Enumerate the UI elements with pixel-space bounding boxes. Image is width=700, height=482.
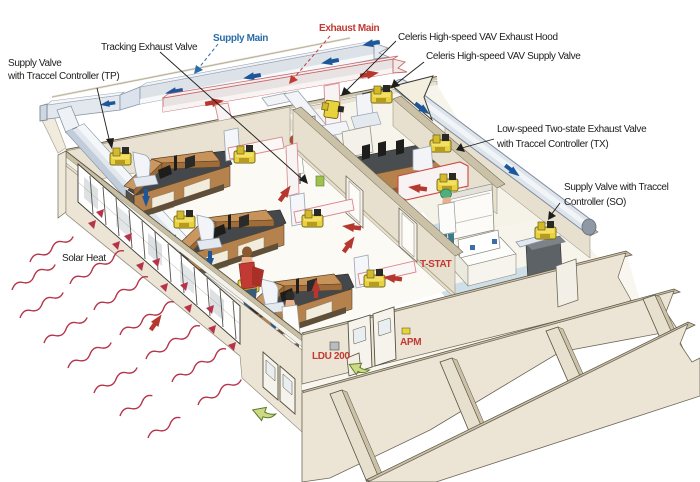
- svg-text:Controller (SO): Controller (SO): [564, 197, 626, 208]
- svg-text:with Traccel Controller (TP): with Traccel Controller (TP): [7, 71, 119, 82]
- svg-text:Tracking Exhaust Valve: Tracking Exhaust Valve: [101, 42, 198, 53]
- svg-text:Celeris High-speed VAV Supply: Celeris High-speed VAV Supply Valve: [426, 51, 581, 62]
- svg-text:Supply Main: Supply Main: [213, 33, 268, 44]
- svg-text:LDU 200: LDU 200: [312, 351, 350, 362]
- svg-text:Supply Valve: Supply Valve: [8, 58, 62, 69]
- svg-text:Exhaust Main: Exhaust Main: [319, 23, 379, 34]
- svg-text:APM: APM: [400, 337, 421, 348]
- svg-text:with Traccel Controller (TX): with Traccel Controller (TX): [496, 139, 608, 150]
- svg-text:Low-speed Two-state Exhaust Va: Low-speed Two-state Exhaust Valve: [497, 124, 647, 135]
- svg-text:Celeris High-speed VAV Exhaust: Celeris High-speed VAV Exhaust Hood: [398, 32, 558, 43]
- svg-text:Solar Heat: Solar Heat: [62, 253, 106, 264]
- svg-text:T-STAT: T-STAT: [420, 259, 452, 270]
- svg-text:Supply Valve with Traccel: Supply Valve with Traccel: [564, 182, 669, 193]
